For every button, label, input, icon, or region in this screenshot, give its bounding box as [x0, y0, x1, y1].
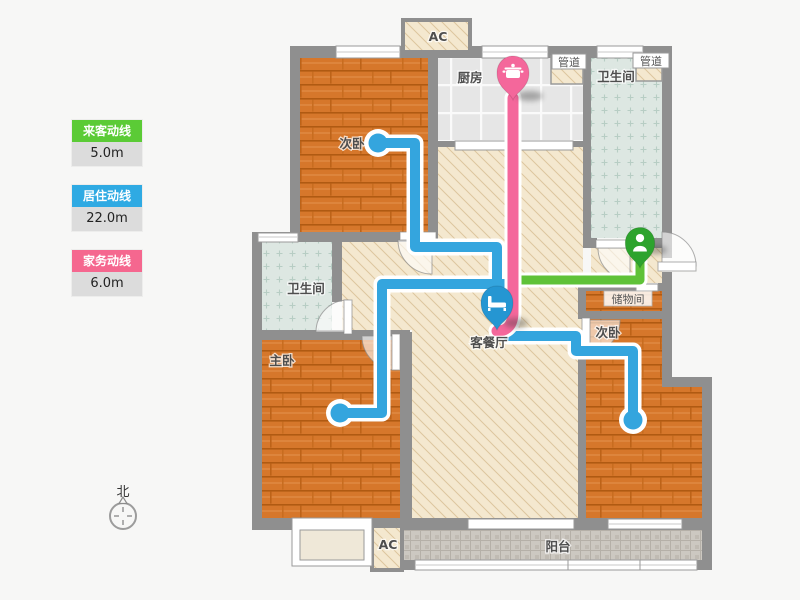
bath-left-label: 卫生间 — [287, 281, 325, 296]
storage-label-group: 储物间 — [604, 291, 652, 306]
window-bedroom-top — [336, 46, 400, 58]
window-balcony — [415, 560, 697, 570]
north-label: 北 — [101, 481, 145, 500]
master-label: 主卧 — [269, 353, 295, 368]
legend-guest: 来客动线 5.0m — [72, 120, 142, 166]
master-door-leaf — [392, 334, 400, 370]
balcony-threshold — [468, 519, 574, 529]
legend-living-label: 居住动线 — [72, 185, 142, 207]
legend-living: 居住动线 22.0m — [72, 185, 142, 231]
legend-living-value: 22.0m — [72, 207, 142, 231]
bay-window-master — [292, 518, 372, 566]
bath-top-label: 卫生间 — [597, 69, 635, 84]
kitchen-label: 厨房 — [457, 70, 482, 85]
duct-1-label: 管道 — [558, 55, 580, 69]
duct-2-label: 管道 — [640, 54, 662, 68]
balcony-label: 阳台 — [545, 539, 570, 554]
entry-door-leaf — [658, 262, 696, 271]
north-compass: 北 — [101, 481, 145, 535]
window-bedroom-right — [608, 519, 682, 529]
bedroom-right-label: 次卧 — [595, 325, 621, 340]
floorplan-page: { "legend": { "items": [ {"label": "来客动线… — [0, 0, 800, 600]
entry-door-arc — [662, 232, 696, 266]
legend-guest-value: 5.0m — [72, 142, 142, 166]
storage-label: 储物间 — [612, 292, 645, 306]
living-floor — [412, 330, 578, 518]
legend-chore-value: 6.0m — [72, 272, 142, 296]
legend-chore-label: 家务动线 — [72, 250, 142, 272]
legend-chore: 家务动线 6.0m — [72, 250, 142, 296]
living-label: 客餐厅 — [469, 335, 508, 350]
legend-guest-label: 来客动线 — [72, 120, 142, 142]
ac-top-label: AC — [429, 29, 448, 44]
bedroom-top-label: 次卧 — [339, 136, 365, 151]
bath-left-door-leaf — [344, 300, 352, 334]
bath-top-floor — [591, 58, 662, 238]
ac-bottom-label: AC — [379, 537, 398, 552]
window-bath-left — [258, 233, 298, 242]
route-legend: 来客动线 5.0m 居住动线 22.0m 家务动线 6.0m — [72, 120, 142, 315]
